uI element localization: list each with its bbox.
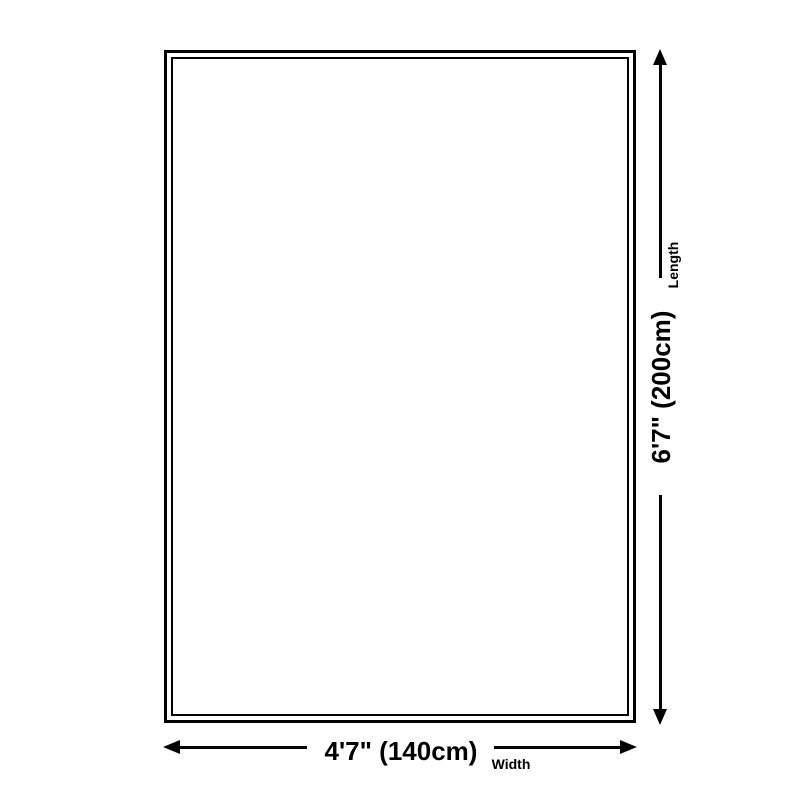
width-value-label: 4'7" (140cm) (325, 738, 478, 764)
size-diagram: 6'7" (200cm) Length 4'7" (140cm) Width (0, 0, 800, 800)
length-arrow-line-bottom (659, 495, 662, 711)
width-axis-label: Width (492, 757, 531, 771)
rug-inner-border (171, 57, 629, 716)
length-axis-label: Length (666, 242, 680, 289)
length-arrow-line-top (659, 60, 662, 278)
arrow-right-icon (620, 740, 637, 754)
width-arrow-line-left (170, 746, 307, 749)
arrow-down-icon (653, 709, 667, 725)
rug-outline (164, 50, 636, 723)
length-value-label: 6'7" (200cm) (648, 311, 674, 464)
width-arrow-line-right (494, 746, 631, 749)
